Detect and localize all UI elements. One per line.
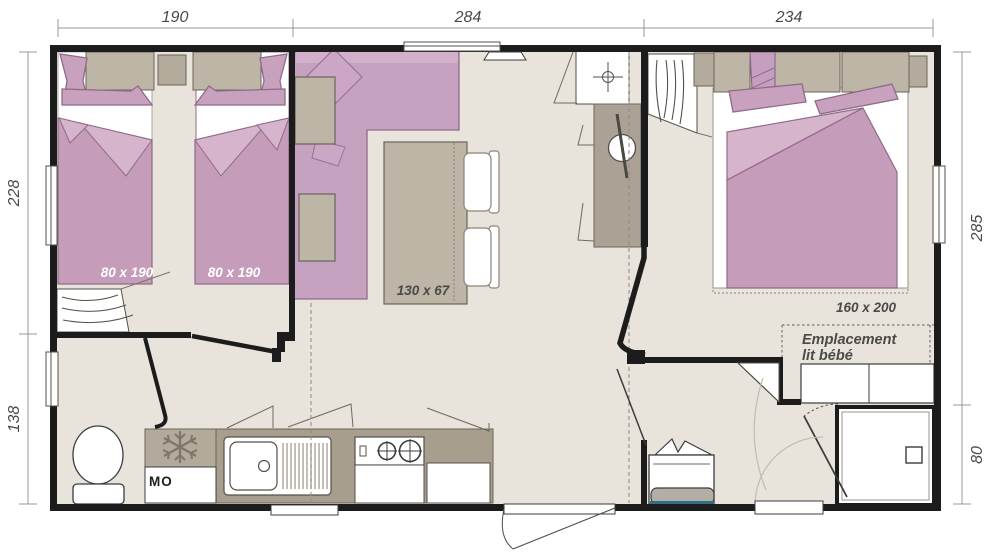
svg-text:228: 228 bbox=[6, 180, 23, 208]
svg-text:80 x 190: 80 x 190 bbox=[101, 265, 154, 280]
svg-text:lit bébé: lit bébé bbox=[802, 348, 853, 364]
svg-text:284: 284 bbox=[454, 9, 482, 26]
svg-text:80: 80 bbox=[969, 446, 986, 464]
svg-text:80 x 190: 80 x 190 bbox=[208, 265, 261, 280]
svg-text:285: 285 bbox=[969, 215, 986, 243]
svg-text:190: 190 bbox=[162, 9, 189, 26]
svg-text:Emplacement: Emplacement bbox=[802, 332, 897, 348]
svg-text:138: 138 bbox=[6, 406, 23, 433]
svg-text:MO: MO bbox=[149, 474, 173, 489]
svg-text:130 x 67: 130 x 67 bbox=[397, 283, 451, 298]
svg-text:234: 234 bbox=[775, 9, 803, 26]
svg-text:160 x 200: 160 x 200 bbox=[836, 300, 897, 315]
